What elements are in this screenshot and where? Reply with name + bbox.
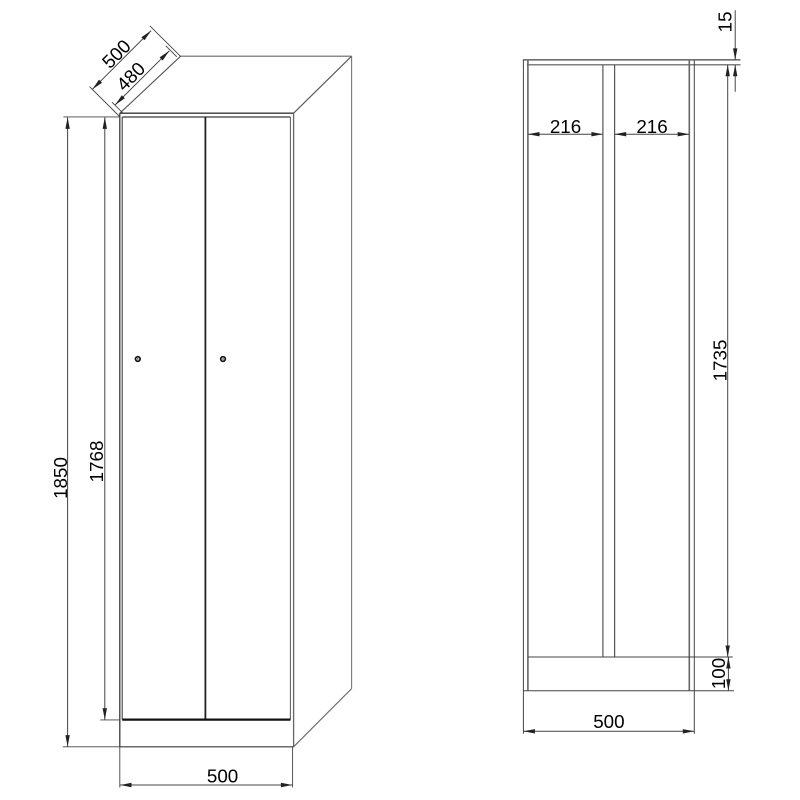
svg-text:1850: 1850 [50, 457, 71, 499]
svg-text:216: 216 [550, 116, 581, 137]
svg-text:100: 100 [708, 658, 729, 689]
svg-text:500: 500 [593, 711, 624, 732]
svg-text:1735: 1735 [709, 340, 730, 382]
svg-text:216: 216 [636, 116, 667, 137]
svg-text:500: 500 [207, 765, 238, 786]
svg-text:1768: 1768 [86, 441, 107, 483]
svg-text:15: 15 [714, 11, 735, 32]
